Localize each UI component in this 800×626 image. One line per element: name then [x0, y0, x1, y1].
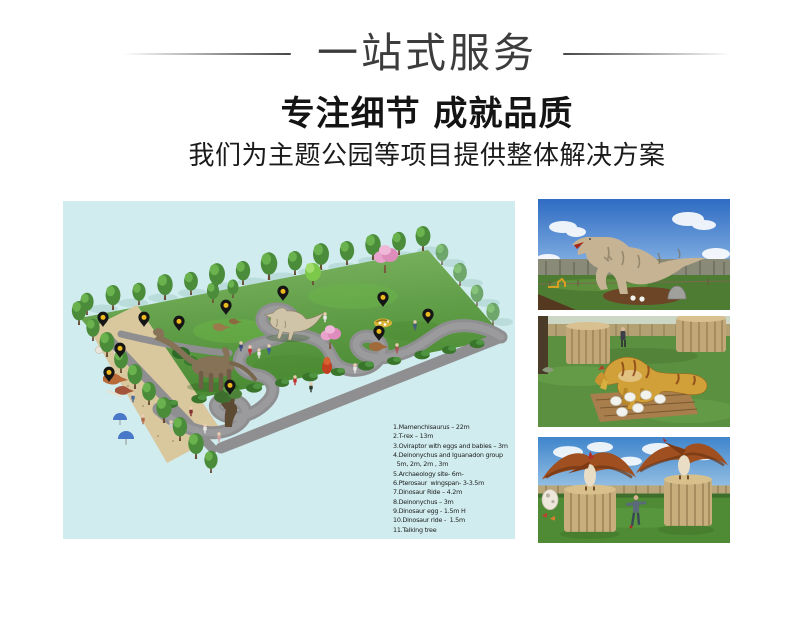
umbrella	[113, 413, 127, 425]
wooden-tower-left	[566, 322, 610, 364]
legend-item: 5m, 2m, 2m , 3m	[393, 460, 515, 469]
legend-item: 6.Pterosaur wingspan- 3-3.5m	[393, 479, 515, 488]
legend-item: 9.Dinosaur egg - 1.5m H	[393, 507, 515, 516]
wooden-tower-left	[564, 484, 616, 531]
legend-item: 5.Archaeology site- 6m-	[393, 470, 515, 479]
map-legend: 1.Mamenchisaurus – 22m2.T-rex – 13m3.Ovi…	[393, 423, 515, 535]
legend-item: 1.Mamenchisaurus – 22m	[393, 423, 515, 432]
wooden-tower-right	[676, 316, 726, 352]
page: { "header": { "title": "一站式服务", "subtitl…	[0, 0, 800, 626]
umbrella	[118, 431, 134, 445]
photo-oviraptor-nest	[538, 316, 730, 427]
legend-item: 2.T-rex – 13m	[393, 432, 515, 441]
photo-column	[538, 199, 730, 545]
legend-item: 7.Dinosaur Ride – 4.2m	[393, 488, 515, 497]
photo-pterosaurs	[538, 437, 730, 543]
page-title: 一站式服务	[317, 33, 537, 74]
section-title-row: 一站式服务	[54, 33, 800, 74]
title-divider-left	[123, 53, 291, 55]
title-divider-right	[563, 53, 731, 55]
wooden-tower-right	[664, 474, 712, 525]
legend-item: 4.Deinonychus and Iguanadon group	[393, 451, 515, 460]
photo-trex	[538, 199, 730, 310]
legend-item: 11.Talking tree	[393, 526, 515, 535]
legend-item: 3.Oviraptor with eggs and babies – 3m	[393, 442, 515, 451]
legend-item: 10.Dinosaur ride - 1.5m	[393, 516, 515, 525]
decorated-egg	[542, 489, 558, 509]
park-map: 1.Mamenchisaurus – 22m2.T-rex – 13m3.Ovi…	[63, 201, 515, 539]
subtitle: 专注细节 成就品质	[54, 86, 800, 135]
legend-item: 8.Deinonychus – 3m	[393, 498, 515, 507]
tagline: 我们为主题公园等项目提供整体解决方案	[54, 135, 800, 172]
